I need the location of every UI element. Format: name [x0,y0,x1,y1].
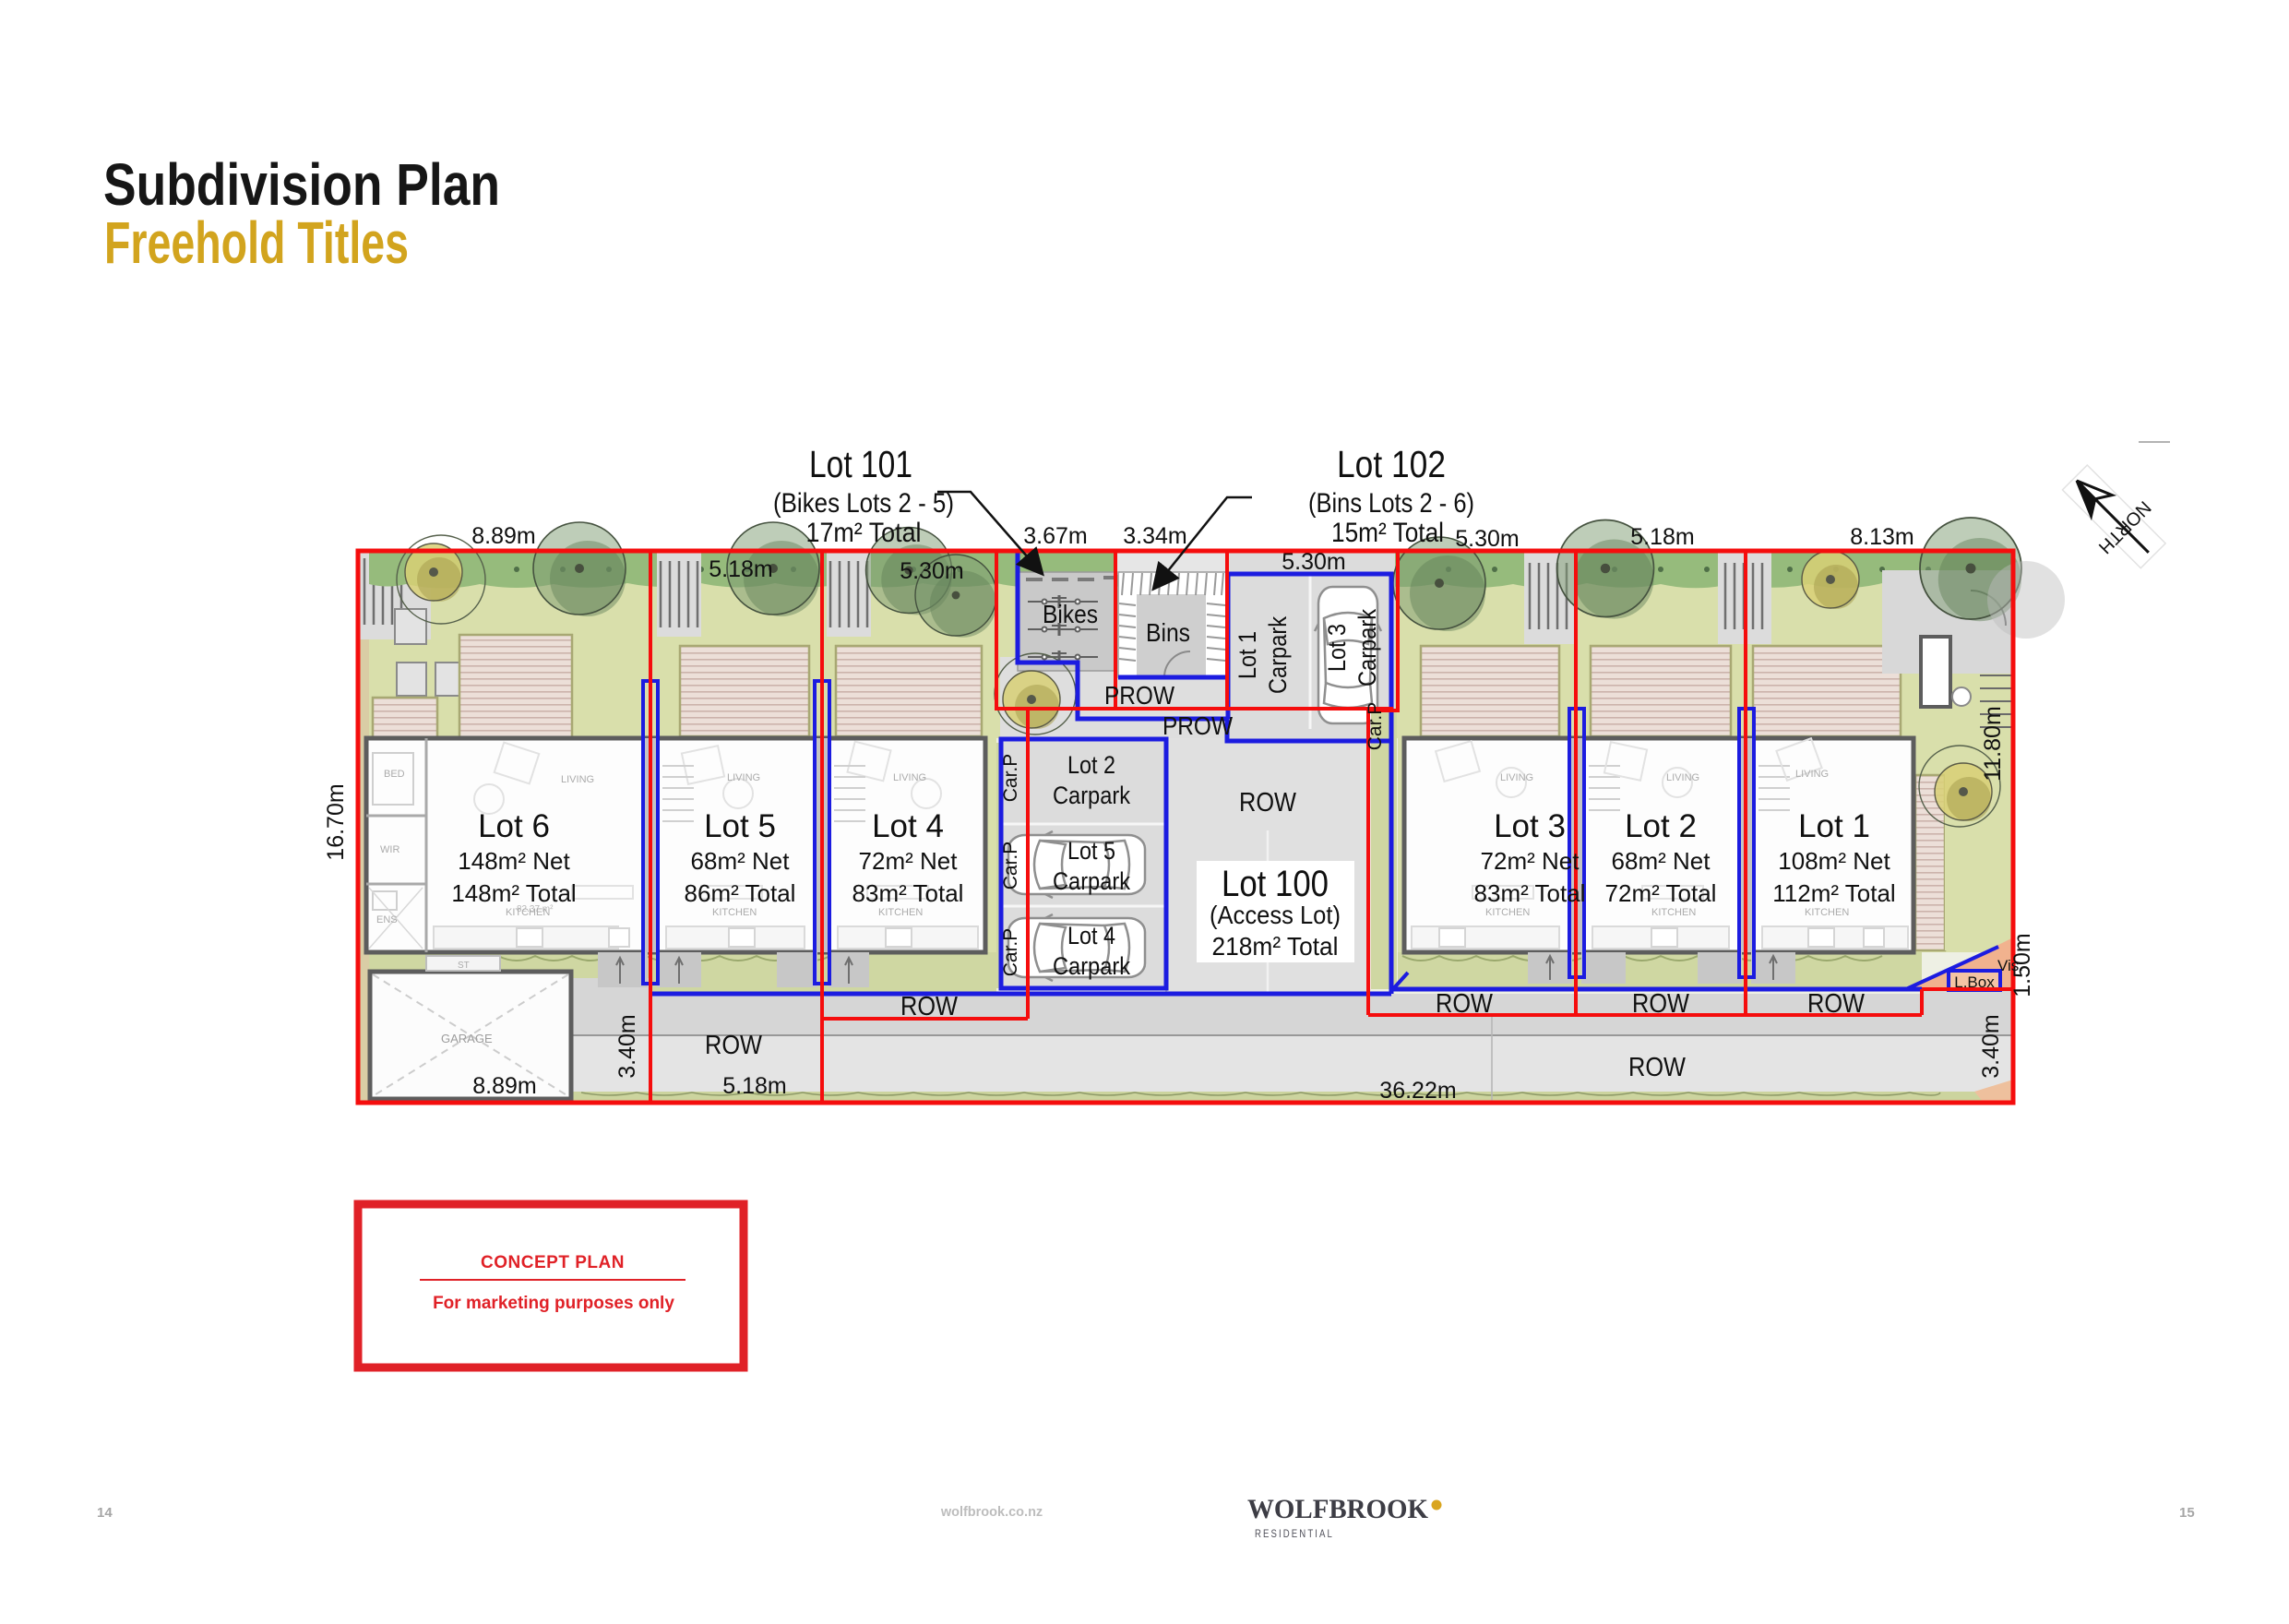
svg-text:KITCHEN: KITCHEN [878,907,923,918]
svg-text:Car.P: Car.P [1000,928,1021,977]
svg-text:KITCHEN: KITCHEN [712,907,757,918]
svg-text:Lot 1: Lot 1 [1798,808,1870,844]
svg-text:ROW: ROW [900,992,959,1021]
svg-text:L.Box: L.Box [1954,973,1995,991]
svg-text:16.70m: 16.70m [323,783,349,860]
svg-text:GARAGE: GARAGE [441,1032,493,1045]
svg-text:LIVING: LIVING [727,772,760,783]
svg-text:Lot 4: Lot 4 [872,808,944,844]
svg-text:5.18m: 5.18m [1630,524,1694,550]
svg-text:ROW: ROW [1632,989,1690,1019]
svg-text:LIVING: LIVING [1795,769,1829,780]
svg-text:Lot 2: Lot 2 [1067,751,1115,779]
svg-text:Lot 5: Lot 5 [1067,837,1115,865]
svg-text:PROW: PROW [1162,711,1233,740]
svg-text:Carpark: Carpark [1053,782,1130,809]
svg-text:ROW: ROW [1807,989,1866,1019]
svg-text:Carpark: Carpark [1264,616,1292,694]
svg-text:8.13m: 8.13m [1850,524,1913,550]
svg-text:148m² Total: 148m² Total [451,879,576,907]
svg-text:Freehold Titles: Freehold Titles [104,209,409,276]
svg-text:wolfbrook.co.nz: wolfbrook.co.nz [940,1505,1043,1520]
svg-text:72m² Total: 72m² Total [1605,879,1717,907]
svg-text:(Bins Lots 2 - 6): (Bins Lots 2 - 6) [1308,488,1474,519]
svg-text:11.80m: 11.80m [1980,706,2006,782]
svg-text:PROW: PROW [1104,681,1174,710]
svg-text:36.22m: 36.22m [1379,1078,1456,1104]
svg-text:For marketing purposes only: For marketing purposes only [433,1294,674,1313]
svg-text:Lot 4: Lot 4 [1067,922,1115,949]
svg-text:KITCHEN: KITCHEN [506,907,550,918]
svg-text:WOLFBROOK: WOLFBROOK [1247,1494,1429,1524]
svg-text:Carpark: Carpark [1053,867,1130,895]
svg-text:Car.P: Car.P [1365,702,1386,751]
svg-text:5.30m: 5.30m [1455,526,1519,552]
svg-text:KITCHEN: KITCHEN [1805,907,1849,918]
svg-text:LIVING: LIVING [1666,772,1699,783]
svg-text:Lot 3: Lot 3 [1494,808,1566,844]
svg-text:3.40m: 3.40m [614,1014,640,1078]
svg-text:5.18m: 5.18m [722,1073,786,1099]
svg-text:LIVING: LIVING [893,772,926,783]
svg-text:15m² Total: 15m² Total [1331,518,1444,548]
svg-text:68m² Net: 68m² Net [1612,847,1711,875]
svg-text:3.67m: 3.67m [1023,523,1087,549]
svg-text:Lot 2: Lot 2 [1625,808,1697,844]
svg-text:72m² Net: 72m² Net [859,847,959,875]
svg-text:(Bikes Lots 2 - 5): (Bikes Lots 2 - 5) [773,488,954,519]
svg-text:ROW: ROW [705,1031,763,1060]
svg-text:Carpark: Carpark [1053,952,1130,980]
svg-text:Bins: Bins [1146,618,1190,647]
svg-text:KITCHEN: KITCHEN [1651,907,1696,918]
svg-text:17m² Total: 17m² Total [806,518,922,548]
svg-text:ROW: ROW [1628,1053,1687,1082]
svg-text:ROW: ROW [1239,788,1297,818]
svg-text:83m² Total: 83m² Total [1474,879,1586,907]
svg-text:KITCHEN: KITCHEN [1485,907,1530,918]
svg-text:RESIDENTIAL: RESIDENTIAL [1255,1529,1334,1540]
svg-text:3.34m: 3.34m [1123,523,1186,549]
svg-text:112m² Total: 112m² Total [1772,879,1895,907]
svg-text:68m² Net: 68m² Net [691,847,791,875]
svg-text:ROW: ROW [1436,989,1494,1019]
svg-text:Bikes: Bikes [1043,600,1098,628]
svg-text:5.18m: 5.18m [709,556,772,582]
svg-text:86m² Total: 86m² Total [685,879,796,907]
svg-text:BED: BED [384,769,405,780]
svg-text:(Access Lot): (Access Lot) [1210,901,1341,929]
svg-text:5.30m: 5.30m [900,558,963,584]
svg-text:Vis.: Vis. [1997,957,2023,974]
svg-text:218m² Total: 218m² Total [1212,932,1339,961]
svg-text:Lot 5: Lot 5 [704,808,776,844]
svg-text:148m² Net: 148m² Net [458,847,570,875]
svg-text:8.89m: 8.89m [472,1073,536,1099]
svg-text:WIR: WIR [380,844,399,855]
svg-text:15: 15 [2179,1505,2195,1521]
svg-text:14: 14 [97,1505,113,1521]
svg-text:CONCEPT PLAN: CONCEPT PLAN [481,1253,625,1272]
svg-text:Carpark: Carpark [1353,609,1381,687]
svg-text:Car.P: Car.P [1000,842,1021,890]
svg-text:Lot 101: Lot 101 [809,443,912,485]
svg-text:83m² Total: 83m² Total [852,879,964,907]
svg-text:Lot 1: Lot 1 [1234,631,1261,679]
svg-text:3.40m: 3.40m [1978,1014,2004,1078]
svg-text:108m² Net: 108m² Net [1778,847,1890,875]
svg-text:ST: ST [458,961,470,971]
svg-text:LIVING: LIVING [1500,772,1533,783]
svg-text:LIVING: LIVING [561,774,594,785]
svg-text:ENS: ENS [376,914,398,925]
svg-text:Lot 3: Lot 3 [1323,624,1351,672]
svg-text:5.30m: 5.30m [1282,549,1345,575]
svg-text:8.89m: 8.89m [471,523,535,549]
svg-text:Lot 6: Lot 6 [478,808,550,844]
svg-text:Lot 100: Lot 100 [1222,864,1329,904]
svg-text:Car.P: Car.P [1000,754,1021,803]
svg-text:Subdivision Plan: Subdivision Plan [103,151,500,218]
svg-text:Lot 102: Lot 102 [1337,443,1446,485]
svg-text:72m² Net: 72m² Net [1481,847,1580,875]
